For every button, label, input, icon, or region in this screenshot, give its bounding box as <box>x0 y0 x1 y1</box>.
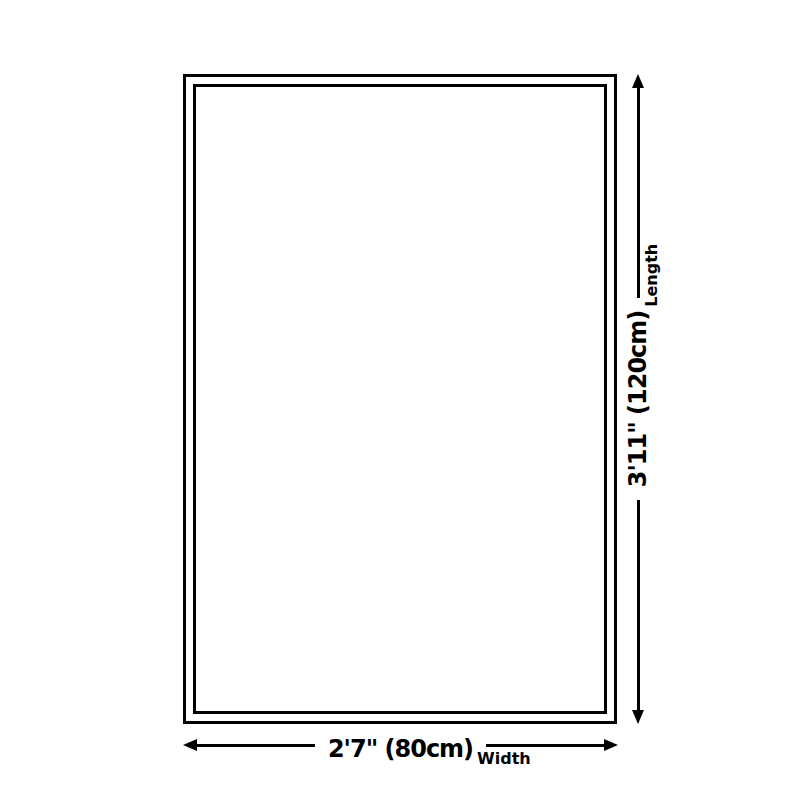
arrow-down-icon <box>632 710 644 724</box>
arrow-left-icon <box>183 739 197 751</box>
width-value: 2'7" (80cm) <box>328 737 473 761</box>
dimension-line <box>197 744 315 747</box>
dimension-line <box>637 500 640 710</box>
width-dimension-line-left <box>183 739 315 751</box>
length-dimension-line-lower <box>632 500 644 724</box>
arrow-right-icon <box>604 739 618 751</box>
rug-outline <box>183 74 617 724</box>
dimension-line <box>637 88 640 298</box>
width-label-group: 2'7" (80cm) Width <box>328 733 473 757</box>
length-dimension: 3'11" (120cm) Length <box>622 74 654 724</box>
size-diagram: 3'11" (120cm) Length 2'7" (80cm) Width <box>0 0 800 800</box>
length-value: 3'11" (120cm) <box>626 311 650 488</box>
arrow-up-icon <box>632 74 644 88</box>
rug-inner-outline <box>193 84 607 714</box>
length-axis-label: Length <box>644 244 660 307</box>
width-dimension: 2'7" (80cm) Width <box>183 729 618 761</box>
width-dimension-row: 2'7" (80cm) Width <box>183 729 618 761</box>
width-axis-label: Width <box>477 751 531 767</box>
length-dimension-row: 3'11" (120cm) Length <box>622 74 654 724</box>
length-label-group: 3'11" (120cm) Length <box>626 311 650 488</box>
dimension-line <box>486 744 604 747</box>
